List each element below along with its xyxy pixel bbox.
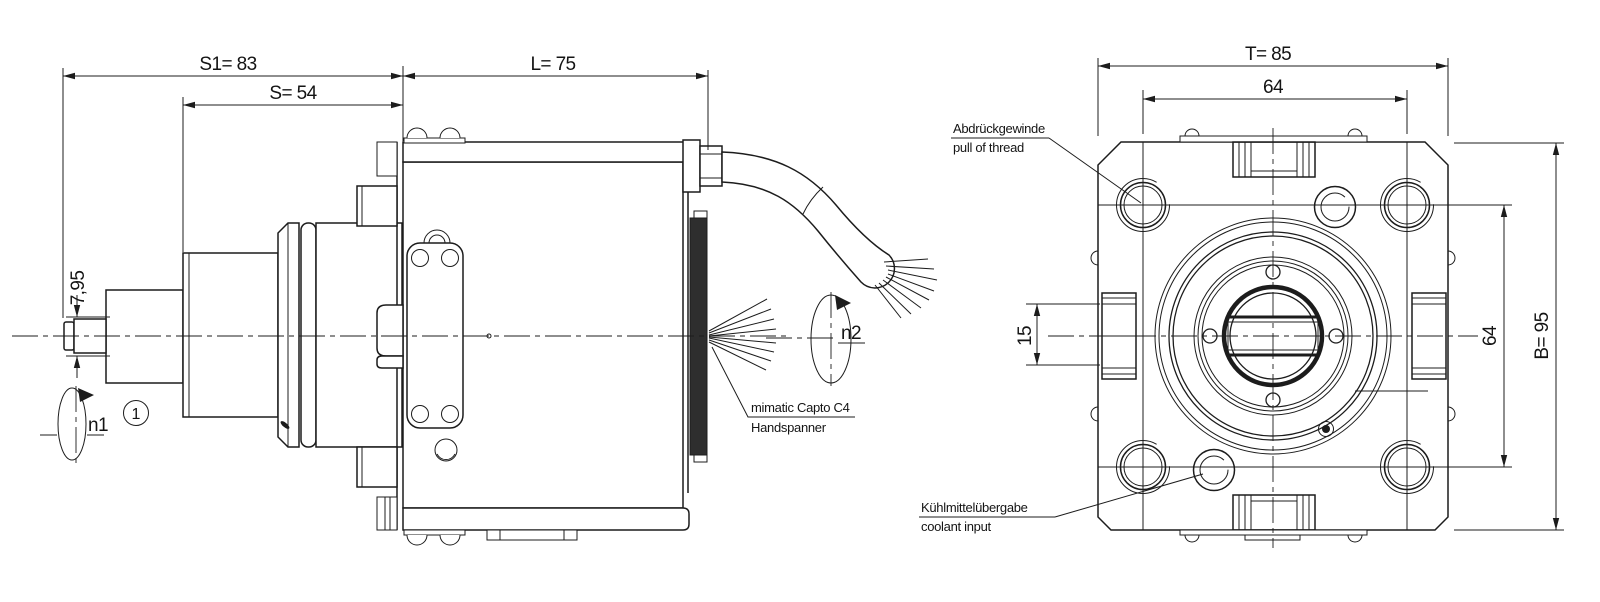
capto-coupling-disc [688, 190, 707, 493]
dim-shaft-dia: 7,95 [68, 271, 89, 306]
coolant-label-line2: coolant input [921, 519, 992, 534]
spindle-shaft [64, 223, 402, 447]
cable-gland [683, 140, 722, 192]
dim-height-64: 64 [1480, 325, 1501, 346]
coolant-label-line1: Kühlmittelübergabe [921, 500, 1028, 515]
front-view: T= 85 64 B= 95 64 15 Abdrückgewinde pull… [919, 44, 1564, 548]
rotation-symbol-n2: n2 [766, 292, 865, 386]
thread-label-line2: pull of thread [953, 140, 1024, 155]
dim-t: T= 85 [1245, 44, 1291, 65]
rotation-symbol-n1: n1 [40, 386, 108, 468]
cable [722, 152, 937, 318]
coolant-spray-fan [709, 299, 776, 370]
dim-l: L= 75 [530, 54, 575, 75]
technical-drawing: S1= 83 S= 54 L= 75 7,95 n1 1 [0, 0, 1600, 602]
drawing-page: S1= 83 S= 54 L= 75 7,95 n1 1 [0, 0, 1600, 602]
balloon-1: 1 [124, 401, 149, 426]
balloon-1-number: 1 [132, 406, 141, 423]
dim-clamp-15: 15 [1015, 326, 1036, 346]
capto-label-line1: mimatic Capto C4 [751, 400, 850, 415]
capto-annotation: mimatic Capto C4 Handspanner [712, 347, 855, 435]
speed-n1-label: n1 [88, 415, 108, 436]
clamp-boss [377, 305, 403, 368]
dim-b: B= 95 [1532, 312, 1553, 359]
dim-s: S= 54 [269, 83, 317, 104]
dim-s1: S1= 83 [199, 54, 256, 75]
thread-label-line1: Abdrückgewinde [953, 121, 1045, 136]
capto-label-line2: Handspanner [751, 420, 827, 435]
side-view: S1= 83 S= 54 L= 75 7,95 n1 1 [12, 54, 937, 545]
dim-width-64: 64 [1263, 77, 1284, 98]
speed-n2-label: n2 [841, 323, 861, 344]
